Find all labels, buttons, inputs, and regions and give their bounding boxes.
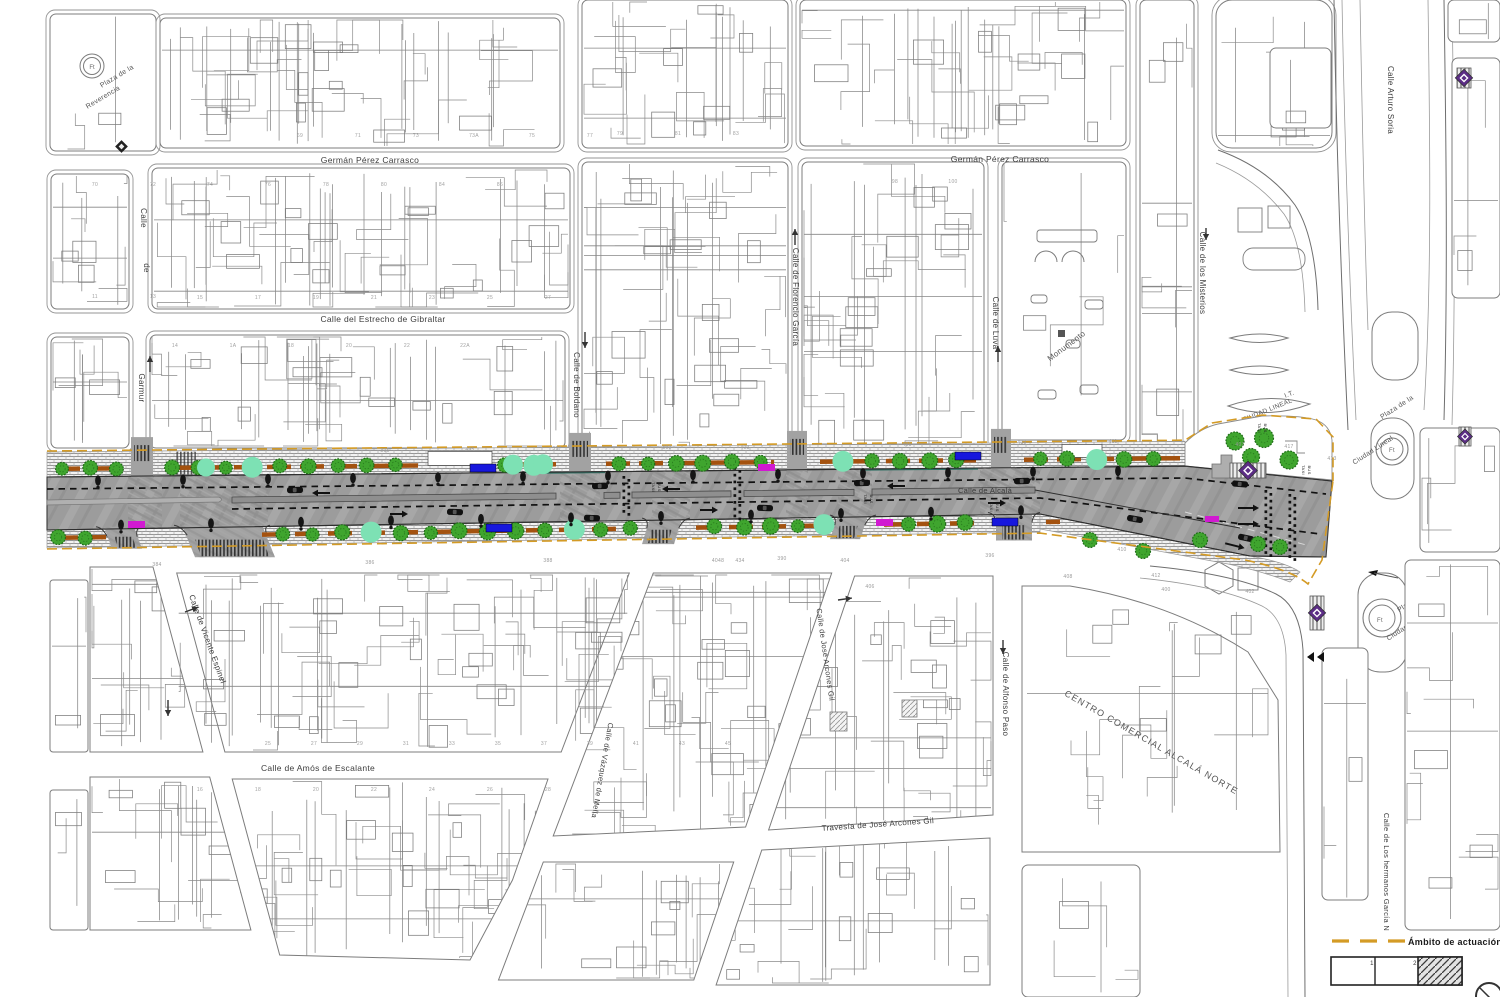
svg-text:Ámbito de actuación: Ámbito de actuación — [1408, 937, 1500, 947]
svg-text:390: 390 — [777, 556, 786, 562]
svg-text:Calle de Luva: Calle de Luva — [991, 297, 1000, 350]
svg-text:23: 23 — [429, 295, 435, 301]
svg-text:406: 406 — [865, 584, 874, 590]
svg-text:388: 388 — [543, 558, 552, 564]
svg-text:20: 20 — [313, 787, 319, 793]
svg-text:18: 18 — [288, 343, 294, 349]
svg-text:Calle del Estrecho de Gibralt: Calle del Estrecho de Gibraltar — [320, 314, 445, 324]
svg-text:28: 28 — [545, 787, 551, 793]
svg-text:22: 22 — [404, 343, 410, 349]
svg-text:397: 397 — [552, 446, 561, 452]
svg-text:Calle de los Misterios: Calle de los Misterios — [1198, 232, 1207, 315]
svg-text:77: 77 — [587, 133, 593, 139]
svg-text:79: 79 — [617, 131, 623, 137]
svg-text:25: 25 — [265, 741, 271, 747]
svg-text:31: 31 — [403, 741, 409, 747]
svg-text:BUS: BUS — [869, 494, 874, 503]
svg-text:BUS: BUS — [1263, 423, 1268, 432]
svg-text:Calle de Amós de Escalante: Calle de Amós de Escalante — [261, 763, 375, 773]
svg-text:Calle de Florencio García: Calle de Florencio García — [791, 248, 800, 346]
svg-text:72: 72 — [150, 182, 156, 188]
svg-text:409: 409 — [1017, 440, 1026, 446]
svg-text:386: 386 — [365, 560, 374, 566]
svg-text:19: 19 — [313, 295, 319, 301]
svg-text:408: 408 — [1063, 574, 1072, 580]
svg-text:384: 384 — [152, 562, 161, 568]
svg-text:410: 410 — [1117, 547, 1126, 553]
svg-text:100: 100 — [948, 179, 957, 185]
svg-text:81: 81 — [675, 131, 681, 137]
svg-text:de: de — [142, 263, 151, 273]
svg-text:Ft: Ft — [1377, 618, 1383, 624]
svg-text:404: 404 — [840, 558, 849, 564]
svg-text:11: 11 — [92, 294, 98, 300]
svg-text:71: 71 — [355, 133, 361, 139]
svg-text:15: 15 — [197, 295, 203, 301]
svg-text:27: 27 — [545, 295, 551, 301]
svg-text:407: 407 — [1235, 442, 1244, 448]
svg-text:1: 1 — [1370, 961, 1374, 967]
svg-text:Calle de Alcalá: Calle de Alcalá — [958, 486, 1013, 495]
svg-text:13: 13 — [150, 294, 156, 300]
svg-text:TAXI: TAXI — [651, 482, 656, 492]
svg-text:84: 84 — [439, 182, 445, 188]
svg-text:Calle de Los hermanos García N: Calle de Los hermanos García N — [1382, 813, 1391, 931]
svg-text:Calle de Alfonso Paso: Calle de Alfonso Paso — [1001, 652, 1010, 737]
svg-text:73A: 73A — [469, 133, 479, 139]
svg-text:86: 86 — [497, 182, 503, 188]
svg-text:24: 24 — [429, 787, 435, 793]
svg-text:83: 83 — [733, 131, 739, 137]
svg-text:Ft: Ft — [89, 65, 95, 71]
svg-text:Germán Pérez Carrasco: Germán Pérez Carrasco — [321, 155, 419, 165]
svg-text:405: 405 — [465, 447, 474, 453]
svg-text:43: 43 — [679, 741, 685, 747]
svg-text:41: 41 — [633, 741, 639, 747]
svg-text:27: 27 — [311, 741, 317, 747]
svg-text:14: 14 — [172, 343, 178, 349]
svg-text:70: 70 — [92, 182, 98, 188]
svg-text:26: 26 — [487, 787, 493, 793]
svg-text:401: 401 — [902, 442, 911, 448]
svg-text:Calle: Calle — [139, 208, 148, 228]
svg-text:80: 80 — [381, 182, 387, 188]
svg-text:17: 17 — [255, 295, 261, 301]
svg-text:417: 417 — [1284, 444, 1293, 450]
svg-text:Ft: Ft — [1389, 448, 1395, 454]
svg-text:396: 396 — [985, 553, 994, 559]
svg-text:78: 78 — [323, 182, 329, 188]
svg-text:33: 33 — [449, 741, 455, 747]
svg-text:403: 403 — [740, 445, 749, 451]
svg-text:45: 45 — [725, 741, 731, 747]
svg-text:4048: 4048 — [712, 558, 724, 564]
svg-text:16: 16 — [197, 787, 203, 793]
svg-text:Calle de Boldano: Calle de Boldano — [572, 352, 581, 418]
svg-text:BUS: BUS — [657, 482, 662, 491]
svg-text:Germán Pérez Carrasco: Germán Pérez Carrasco — [951, 154, 1049, 164]
svg-text:411: 411 — [1109, 439, 1118, 445]
svg-text:Garmur: Garmur — [137, 374, 146, 403]
svg-text:69: 69 — [297, 133, 303, 139]
svg-text:412: 412 — [1151, 573, 1160, 579]
svg-text:TAXI: TAXI — [989, 502, 994, 512]
svg-text:399: 399 — [662, 445, 671, 451]
svg-text:37: 37 — [541, 741, 547, 747]
svg-text:Calle Arturo Soria: Calle Arturo Soria — [1386, 66, 1395, 134]
svg-text:402: 402 — [1245, 589, 1254, 595]
svg-text:20: 20 — [346, 343, 352, 349]
svg-text:39: 39 — [587, 741, 593, 747]
svg-text:400: 400 — [1161, 587, 1170, 593]
svg-text:434: 434 — [735, 558, 744, 564]
svg-text:35: 35 — [495, 741, 501, 747]
svg-text:22: 22 — [371, 787, 377, 793]
svg-text:395: 395 — [380, 448, 389, 454]
svg-text:76: 76 — [265, 182, 271, 188]
svg-text:74: 74 — [207, 182, 213, 188]
svg-text:BUS: BUS — [995, 502, 1000, 511]
svg-text:413: 413 — [1327, 456, 1336, 462]
svg-text:98: 98 — [892, 179, 898, 185]
svg-text:21: 21 — [371, 295, 377, 301]
svg-text:22A: 22A — [460, 343, 470, 349]
svg-text:TAXI: TAXI — [1301, 465, 1306, 475]
svg-text:TAXI: TAXI — [1257, 423, 1262, 433]
svg-text:18: 18 — [255, 787, 261, 793]
svg-text:29: 29 — [357, 741, 363, 747]
svg-text:25: 25 — [487, 295, 493, 301]
svg-text:1A: 1A — [230, 343, 237, 349]
svg-text:2: 2 — [1413, 961, 1417, 967]
svg-text:TAXI: TAXI — [863, 494, 868, 504]
svg-text:BUS: BUS — [1307, 465, 1312, 474]
svg-text:73: 73 — [413, 133, 419, 139]
svg-text:75: 75 — [529, 133, 535, 139]
